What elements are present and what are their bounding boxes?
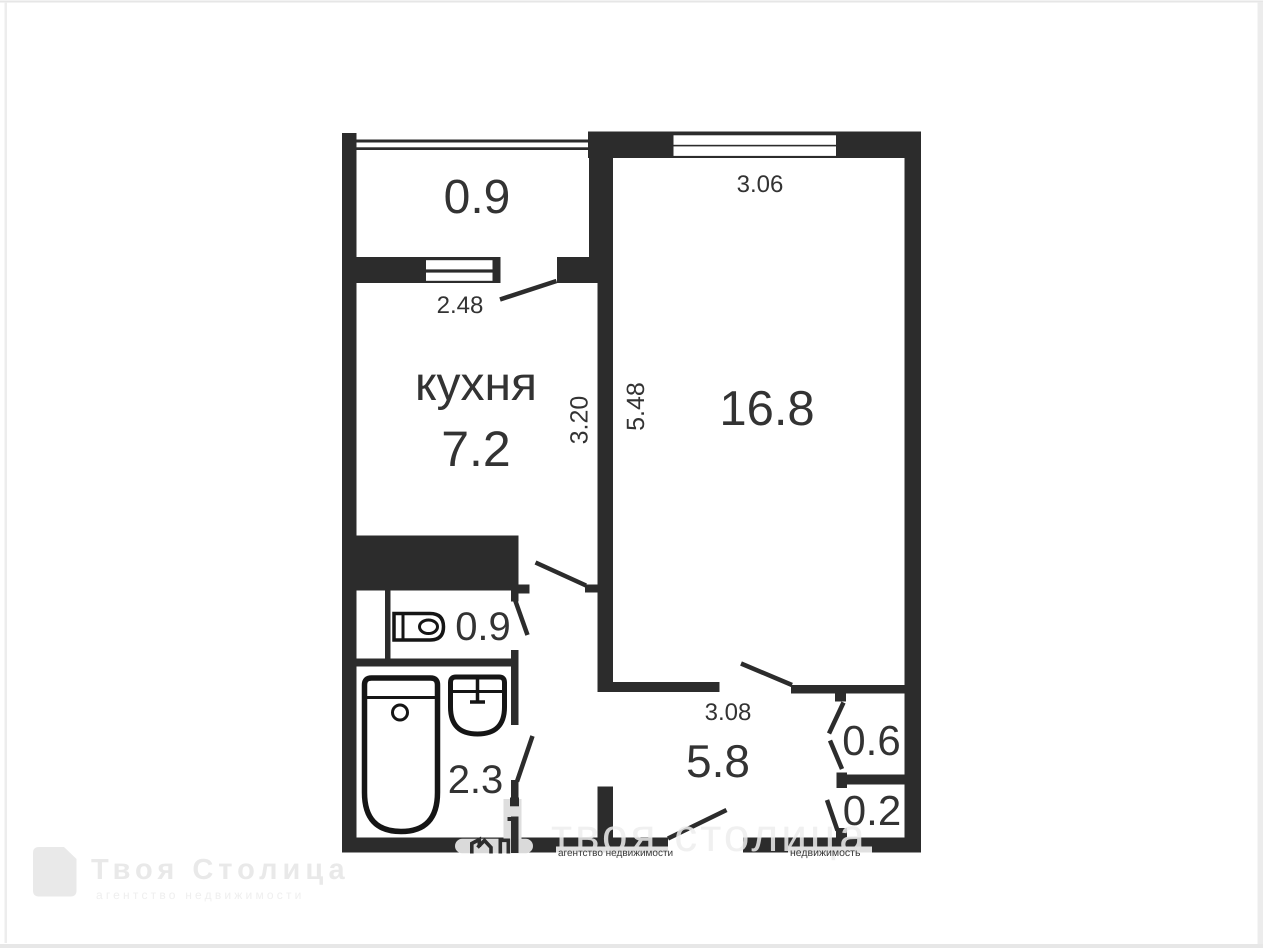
svg-text:2.48: 2.48: [437, 292, 484, 319]
svg-text:5.48: 5.48: [622, 382, 650, 431]
svg-text:3.06: 3.06: [737, 171, 784, 198]
svg-text:кухня: кухня: [415, 358, 537, 411]
svg-text:0.9: 0.9: [455, 605, 511, 649]
svg-text:агентство недвижимости: агентство недвижимости: [96, 888, 305, 902]
svg-text:3.20: 3.20: [566, 396, 594, 445]
svg-text:7.2: 7.2: [441, 421, 511, 477]
svg-text:0.9: 0.9: [444, 171, 511, 224]
svg-text:агентство недвижимости: агентство недвижимости: [558, 848, 673, 859]
svg-text:недвижимость: недвижимость: [790, 847, 861, 859]
svg-text:2.3: 2.3: [448, 758, 504, 802]
svg-text:16.8: 16.8: [719, 382, 814, 436]
svg-text:5.8: 5.8: [686, 735, 750, 787]
svg-text:Твоя Столица: Твоя Столица: [91, 854, 350, 886]
svg-text:3.08: 3.08: [705, 699, 752, 726]
svg-text:0.6: 0.6: [842, 717, 900, 764]
